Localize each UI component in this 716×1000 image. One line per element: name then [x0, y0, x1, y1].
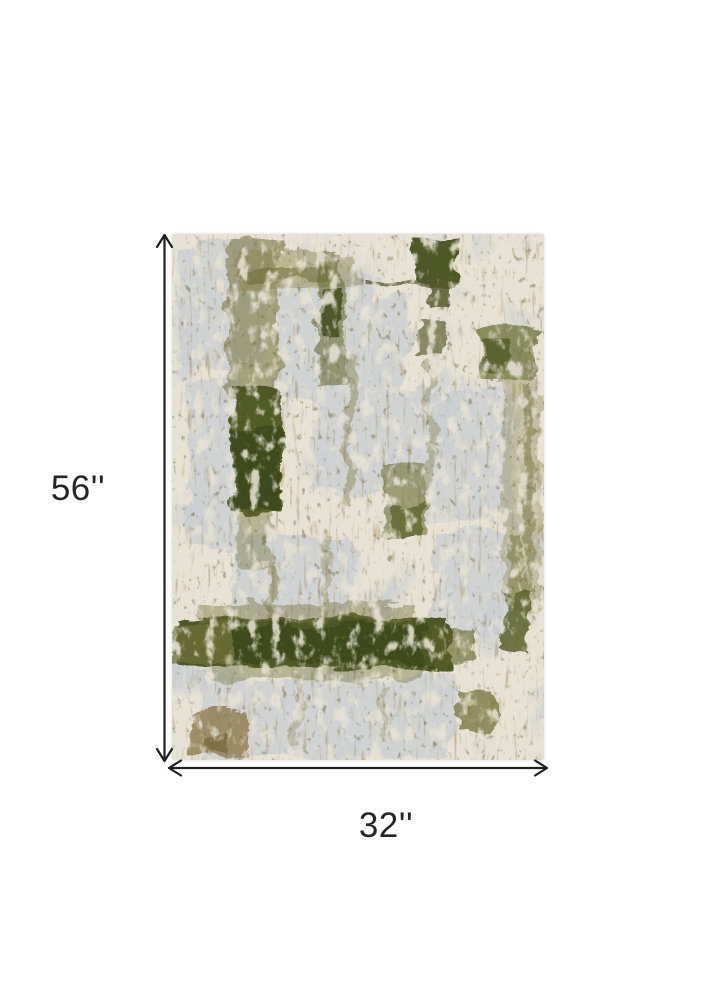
rug-wear-overlay — [172, 234, 544, 760]
rug-texture-art — [172, 234, 544, 760]
arrow-head-right-icon — [535, 761, 547, 776]
arrow-head-down-icon — [157, 749, 172, 761]
height-dimension-arrow-icon — [157, 235, 172, 761]
rug-image — [172, 234, 544, 760]
arrow-head-left-icon — [169, 761, 181, 776]
product-dimension-diagram: 56'' 32'' — [0, 0, 716, 1000]
width-dimension-arrow-icon — [169, 761, 547, 776]
arrow-head-up-icon — [157, 235, 172, 247]
height-dimension-label: 56'' — [30, 470, 126, 509]
width-dimension-label: 32'' — [338, 807, 434, 846]
